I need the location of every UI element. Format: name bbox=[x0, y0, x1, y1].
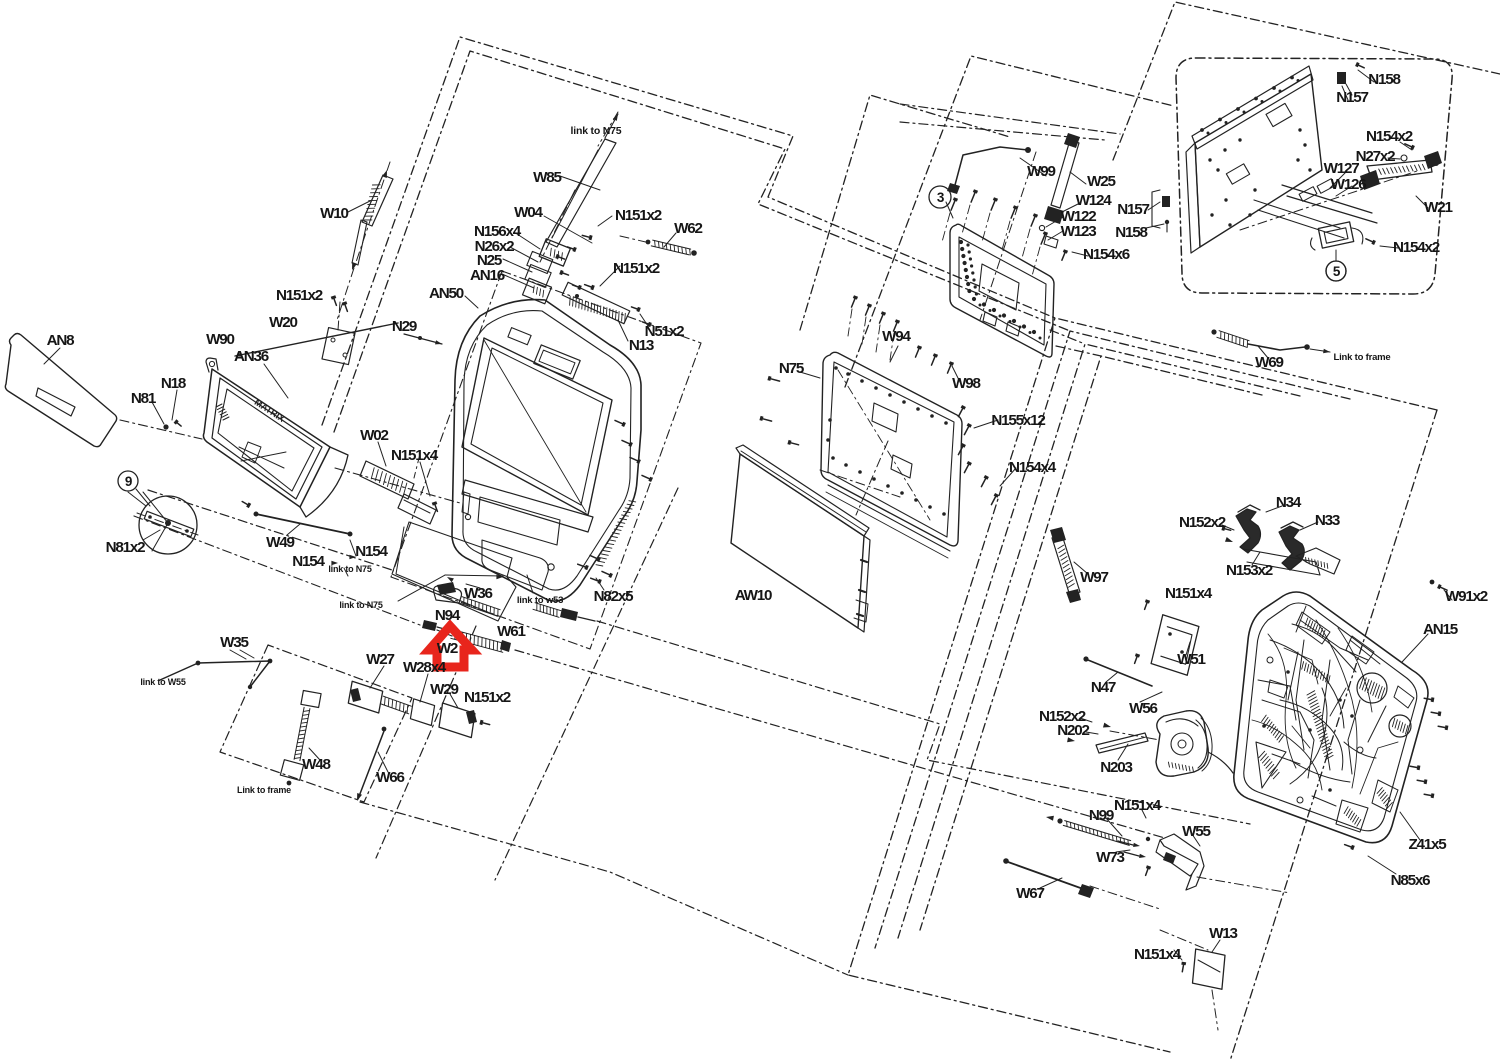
svg-text:W126: W126 bbox=[1331, 176, 1367, 193]
svg-text:W67: W67 bbox=[1016, 885, 1044, 902]
svg-text:N81: N81 bbox=[131, 390, 157, 407]
svg-text:W55: W55 bbox=[1182, 823, 1211, 840]
svg-text:W62: W62 bbox=[674, 220, 702, 237]
svg-text:N158: N158 bbox=[1368, 71, 1400, 88]
svg-text:W29: W29 bbox=[430, 681, 458, 698]
svg-text:W21: W21 bbox=[1424, 199, 1453, 216]
svg-text:W90: W90 bbox=[206, 331, 234, 348]
svg-text:AN8: AN8 bbox=[47, 332, 75, 349]
svg-text:N81x2: N81x2 bbox=[106, 539, 146, 556]
svg-text:W97: W97 bbox=[1080, 569, 1108, 586]
svg-text:link to N75: link to N75 bbox=[328, 564, 372, 574]
svg-text:W56: W56 bbox=[1129, 700, 1157, 717]
svg-text:N157: N157 bbox=[1117, 201, 1149, 218]
svg-text:N154: N154 bbox=[292, 553, 325, 570]
svg-text:N27x2: N27x2 bbox=[1356, 148, 1396, 165]
svg-text:N94: N94 bbox=[435, 607, 461, 624]
svg-text:N154x4: N154x4 bbox=[1009, 459, 1057, 476]
svg-text:link to N75: link to N75 bbox=[339, 600, 383, 610]
svg-text:W94: W94 bbox=[882, 328, 911, 345]
svg-text:N47: N47 bbox=[1091, 679, 1116, 696]
svg-text:AN16: AN16 bbox=[470, 267, 505, 284]
svg-text:W66: W66 bbox=[376, 769, 404, 786]
svg-text:N154: N154 bbox=[355, 543, 388, 560]
svg-text:W35: W35 bbox=[220, 634, 249, 651]
svg-text:Link to frame: Link to frame bbox=[1333, 352, 1390, 363]
svg-text:N151x2: N151x2 bbox=[613, 260, 660, 277]
svg-text:N33: N33 bbox=[1315, 512, 1340, 529]
svg-text:link to N75: link to N75 bbox=[571, 125, 622, 137]
svg-text:N202: N202 bbox=[1057, 722, 1089, 739]
svg-text:W2: W2 bbox=[437, 640, 458, 657]
svg-text:W02: W02 bbox=[360, 427, 388, 444]
svg-text:N153x2: N153x2 bbox=[1226, 562, 1273, 579]
svg-text:N151x4: N151x4 bbox=[1165, 585, 1213, 602]
svg-text:N203: N203 bbox=[1100, 759, 1132, 776]
svg-text:W127: W127 bbox=[1324, 160, 1360, 177]
svg-text:link to W55: link to W55 bbox=[140, 677, 185, 687]
svg-text:N18: N18 bbox=[161, 375, 186, 392]
svg-text:W91x2: W91x2 bbox=[1445, 588, 1488, 605]
svg-text:N151x4: N151x4 bbox=[1114, 797, 1162, 814]
svg-text:link to w53: link to w53 bbox=[517, 595, 563, 606]
svg-text:W49: W49 bbox=[266, 534, 294, 551]
svg-text:W10: W10 bbox=[320, 205, 348, 222]
svg-text:N155x12: N155x12 bbox=[991, 412, 1045, 429]
svg-text:AN15: AN15 bbox=[1423, 621, 1459, 638]
svg-text:9: 9 bbox=[125, 474, 132, 489]
svg-text:W36: W36 bbox=[464, 585, 492, 602]
svg-text:W61: W61 bbox=[497, 623, 526, 640]
svg-text:N151x2: N151x2 bbox=[464, 689, 511, 706]
svg-text:W99: W99 bbox=[1027, 163, 1055, 180]
svg-text:N13: N13 bbox=[629, 337, 654, 354]
svg-text:N29: N29 bbox=[392, 318, 417, 335]
svg-text:W124: W124 bbox=[1076, 192, 1113, 209]
svg-text:W25: W25 bbox=[1087, 173, 1116, 190]
svg-text:N152x2: N152x2 bbox=[1179, 514, 1226, 531]
svg-text:N154x2: N154x2 bbox=[1366, 128, 1413, 145]
svg-text:AW10: AW10 bbox=[735, 587, 772, 604]
svg-text:N99: N99 bbox=[1089, 807, 1114, 824]
svg-text:N75: N75 bbox=[779, 360, 805, 377]
svg-text:W73: W73 bbox=[1096, 849, 1124, 866]
svg-text:W69: W69 bbox=[1255, 354, 1283, 371]
svg-text:N154x6: N154x6 bbox=[1083, 246, 1130, 263]
svg-text:N151x4: N151x4 bbox=[1134, 946, 1182, 963]
svg-text:W51: W51 bbox=[1177, 651, 1206, 668]
svg-text:AN36: AN36 bbox=[234, 348, 269, 365]
svg-text:W98: W98 bbox=[952, 375, 980, 392]
svg-text:W13: W13 bbox=[1209, 925, 1237, 942]
svg-text:N151x4: N151x4 bbox=[391, 447, 439, 464]
svg-text:N154x2: N154x2 bbox=[1393, 239, 1440, 256]
svg-text:N85x6: N85x6 bbox=[1391, 872, 1431, 889]
svg-text:N34: N34 bbox=[1276, 494, 1302, 511]
svg-text:N151x2: N151x2 bbox=[615, 207, 662, 224]
svg-text:N151x2: N151x2 bbox=[276, 287, 323, 304]
svg-text:AN50: AN50 bbox=[429, 285, 464, 302]
svg-text:N82x5: N82x5 bbox=[594, 588, 635, 605]
svg-text:W85: W85 bbox=[533, 169, 562, 186]
svg-text:W04: W04 bbox=[514, 204, 543, 221]
svg-text:W123: W123 bbox=[1061, 223, 1097, 240]
svg-text:N157: N157 bbox=[1336, 89, 1368, 106]
svg-text:W20: W20 bbox=[269, 314, 297, 331]
svg-text:W48: W48 bbox=[302, 756, 330, 773]
svg-text:W28x4: W28x4 bbox=[403, 659, 447, 676]
svg-text:Z41x5: Z41x5 bbox=[1408, 836, 1447, 853]
svg-text:N158: N158 bbox=[1115, 224, 1147, 241]
svg-text:W27: W27 bbox=[366, 651, 394, 668]
svg-text:Link to frame: Link to frame bbox=[237, 785, 291, 795]
